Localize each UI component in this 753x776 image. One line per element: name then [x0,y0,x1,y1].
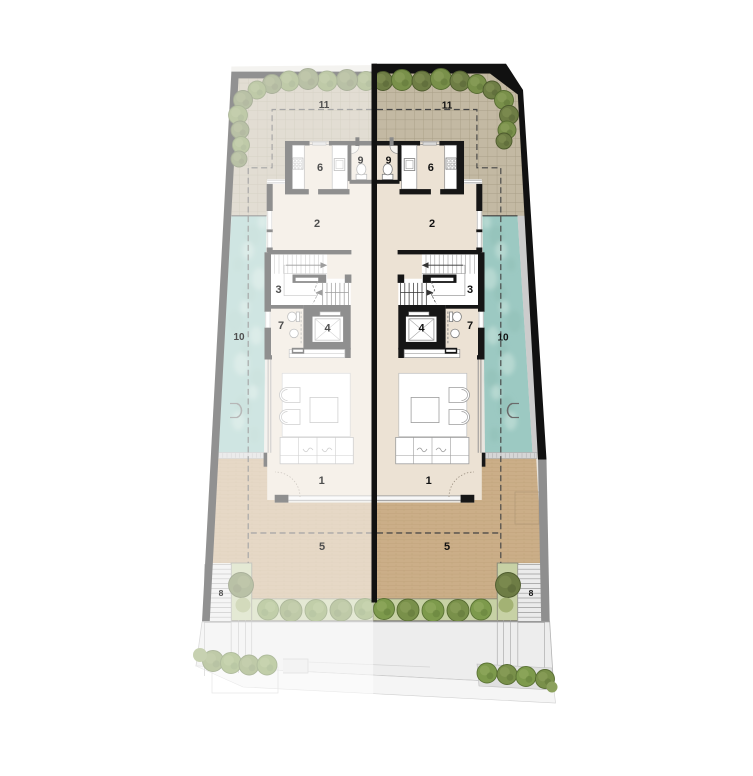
svg-text:8: 8 [529,588,534,598]
svg-text:10: 10 [233,332,245,343]
svg-text:1: 1 [426,475,432,487]
svg-text:1: 1 [319,475,325,487]
svg-text:3: 3 [467,284,473,296]
svg-text:9: 9 [358,155,364,167]
svg-text:8: 8 [219,588,224,598]
svg-text:5: 5 [444,541,450,553]
svg-text:10: 10 [497,333,509,344]
svg-text:6: 6 [428,162,434,174]
svg-text:4: 4 [418,323,425,335]
svg-text:2: 2 [429,218,435,230]
svg-text:6: 6 [317,162,323,174]
svg-text:5: 5 [319,541,325,553]
svg-text:4: 4 [324,323,331,335]
svg-text:2: 2 [314,218,320,230]
svg-text:11: 11 [442,101,453,112]
svg-text:7: 7 [467,320,473,332]
svg-text:9: 9 [386,155,392,167]
svg-text:3: 3 [275,284,281,296]
svg-text:11: 11 [319,100,330,111]
svg-text:7: 7 [278,320,284,332]
